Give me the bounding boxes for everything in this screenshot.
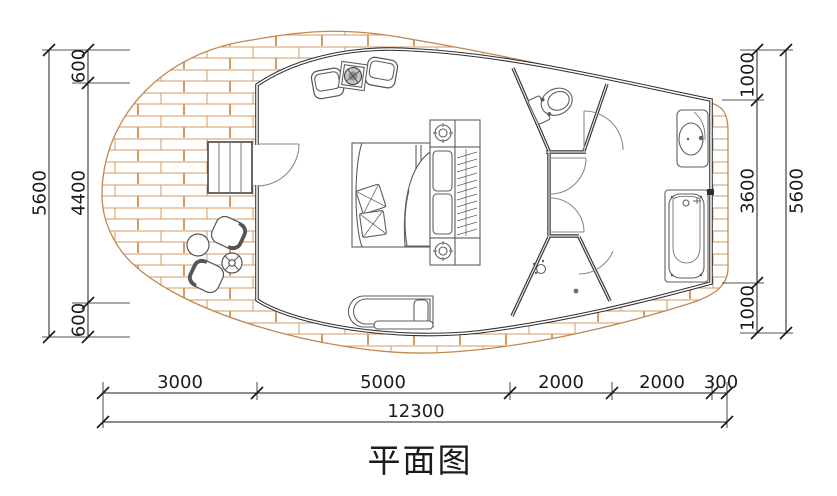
dim-bottom-5000: 5000 (360, 372, 406, 393)
floor-drain-icon (574, 289, 579, 294)
entry-steps-icon (208, 142, 252, 193)
double-bed-icon (352, 143, 430, 247)
floor-plan-drawing: 600 4400 600 5600 1000 3600 1000 5600 30… (0, 0, 837, 496)
dim-right-1000-bottom: 1000 (738, 285, 759, 331)
dim-right-3600: 3600 (738, 168, 759, 214)
wall-joint-marker (707, 189, 714, 195)
dim-left-600-bottom: 600 (69, 303, 90, 337)
washbasin-icon (677, 110, 708, 167)
dim-bottom-300: 300 (704, 372, 738, 393)
dim-bottom-2000a: 2000 (538, 372, 584, 393)
daybed-icon (348, 296, 433, 329)
wardrobe-hangers-icon (455, 147, 480, 238)
headboard-unit (430, 120, 480, 265)
armchair-icon (364, 56, 398, 89)
pillow-icon (359, 210, 386, 237)
dim-left-4400: 4400 (69, 170, 90, 216)
dim-bottom-2000b: 2000 (639, 372, 685, 393)
terrace-round-table-icon (187, 234, 209, 256)
bathtub-icon (665, 190, 708, 282)
drawing-title: 平面图 (368, 441, 473, 480)
dim-right-overall: 5600 (787, 168, 808, 214)
dim-bottom-3000: 3000 (157, 372, 203, 393)
dim-right-1000-top: 1000 (738, 52, 759, 98)
dim-left-600-top: 600 (69, 49, 90, 83)
terrace-cross-table-icon (222, 253, 242, 273)
fire-table-icon (338, 61, 367, 90)
floor-plan-page: 600 4400 600 5600 1000 3600 1000 5600 30… (0, 0, 837, 496)
dim-left-overall: 5600 (30, 170, 51, 216)
dim-bottom-overall: 12300 (387, 401, 444, 422)
